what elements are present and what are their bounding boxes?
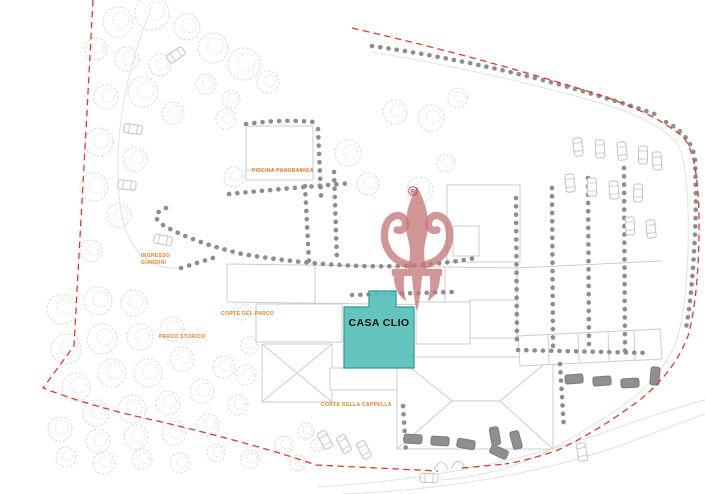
tree-icon xyxy=(197,414,219,436)
car-icon xyxy=(639,146,648,164)
casa-clio-label: CASA CLIO xyxy=(344,317,414,329)
tree-icon xyxy=(198,33,228,63)
hedge-dotted-row xyxy=(552,188,553,348)
tree-icon xyxy=(162,421,186,445)
car-icon xyxy=(572,138,583,157)
area-label-ingresso-line1: INGRESSO xyxy=(141,253,170,260)
area-label-piscina-panoramica: PISCINA PANORAMICA xyxy=(252,168,314,175)
tree-icon xyxy=(190,379,214,403)
hedge-dotted-row xyxy=(305,186,309,262)
tree-icon xyxy=(98,359,126,387)
tree-icon xyxy=(93,452,115,474)
tree-icon xyxy=(196,74,216,94)
tree-icon xyxy=(124,425,148,449)
tree-icon xyxy=(80,240,102,262)
tree-icon xyxy=(290,455,306,471)
car-icon xyxy=(317,430,333,450)
tree-icon xyxy=(134,359,162,387)
tree-icon xyxy=(87,324,117,354)
car-icon xyxy=(123,123,142,134)
car-icon xyxy=(336,434,352,454)
car-icon xyxy=(625,217,635,235)
hedge-dotted-row xyxy=(246,121,314,124)
tree-icon xyxy=(383,100,407,124)
boundary-west-south xyxy=(43,0,438,471)
tree-icon xyxy=(162,102,184,124)
tree-icon xyxy=(418,105,444,131)
gate-arch-left xyxy=(434,462,448,470)
tree-icon xyxy=(86,429,110,453)
tree-icon xyxy=(128,77,158,107)
car-icon xyxy=(153,234,172,247)
site-plan-page: B PISCINA PANORAMICA INGRESSO GIARDINI C… xyxy=(0,0,705,494)
car-icon xyxy=(587,178,597,196)
tree-icon xyxy=(213,356,235,378)
hedge-dotted-row xyxy=(588,178,589,350)
car-icon xyxy=(593,376,612,386)
car-icon xyxy=(118,180,137,191)
tree-icon xyxy=(83,400,109,426)
car-icon xyxy=(595,140,605,158)
car-icon xyxy=(565,174,576,193)
building-southwest-block xyxy=(262,344,332,402)
tree-icon xyxy=(118,395,146,423)
car-icon xyxy=(356,440,372,460)
building-center-east-2 xyxy=(470,300,517,338)
tree-icon xyxy=(241,450,259,468)
area-label-ingresso-giardini: INGRESSO GIARDINI xyxy=(141,253,170,267)
tree-icon xyxy=(216,109,236,129)
tree-icon xyxy=(298,423,314,439)
tree-icon xyxy=(448,88,468,108)
car-icon xyxy=(404,434,422,444)
area-label-corte-della-cappella: CORTE DELLA CAPPELLA xyxy=(321,402,392,409)
building-northeast xyxy=(447,185,520,262)
building-west-wing xyxy=(256,304,342,342)
tree-icon xyxy=(123,147,147,171)
tree-icon xyxy=(48,417,72,441)
car-icon xyxy=(166,46,186,64)
hedge-dotted-row xyxy=(560,364,564,430)
car-icon xyxy=(652,152,662,171)
tree-icon xyxy=(174,14,200,40)
car-icon xyxy=(646,220,657,239)
car-icon xyxy=(617,142,628,161)
tree-icon xyxy=(224,167,244,187)
tree-icon xyxy=(335,140,361,166)
car-icon xyxy=(431,436,449,446)
tree-icon xyxy=(357,173,379,195)
property-boundary xyxy=(43,0,699,471)
car-icon xyxy=(565,374,584,384)
tree-icon xyxy=(437,154,455,172)
hedge-dotted-row xyxy=(624,168,625,352)
tree-icon xyxy=(103,7,133,37)
tree-icon xyxy=(228,48,260,80)
tree-icon xyxy=(170,347,194,371)
area-label-parco-storico: PARCO STORICO xyxy=(159,334,205,341)
tree-icon xyxy=(121,290,147,316)
car-icon xyxy=(621,378,639,388)
tree-icon xyxy=(222,90,240,108)
car-icon xyxy=(420,473,438,483)
hedge-dotted-row xyxy=(181,257,216,268)
tree-icon xyxy=(80,173,108,201)
car-icon xyxy=(633,184,642,202)
area-label-ingresso-line2: GIARDINI xyxy=(141,260,170,267)
main-building-strip xyxy=(227,261,662,306)
tree-icon xyxy=(170,453,190,473)
svg-text:B: B xyxy=(411,190,416,196)
tree-icon xyxy=(275,436,293,454)
tree-icon xyxy=(84,287,112,315)
tree-icon xyxy=(236,365,256,385)
tree-icon xyxy=(257,71,279,93)
tree-icon xyxy=(94,85,118,109)
tree-icon xyxy=(127,324,153,350)
tree-icon xyxy=(56,447,76,467)
tree-icon xyxy=(51,334,81,364)
tree-icon xyxy=(107,203,131,227)
car-icon xyxy=(609,181,620,200)
tree-icon xyxy=(132,449,152,469)
tree-icon xyxy=(85,38,107,60)
tree-icon xyxy=(115,47,139,71)
site-plan-drawing: B xyxy=(0,0,705,494)
tree-icon xyxy=(228,395,248,415)
tree-icon xyxy=(85,128,113,156)
tree-icon xyxy=(156,391,180,415)
tree-icon xyxy=(47,294,77,324)
area-label-corte-del-parco: CORTE DEL PARCO xyxy=(221,311,274,318)
building-center-east-1 xyxy=(416,302,470,344)
tree-icon xyxy=(207,444,225,462)
tree-icon xyxy=(135,0,169,30)
